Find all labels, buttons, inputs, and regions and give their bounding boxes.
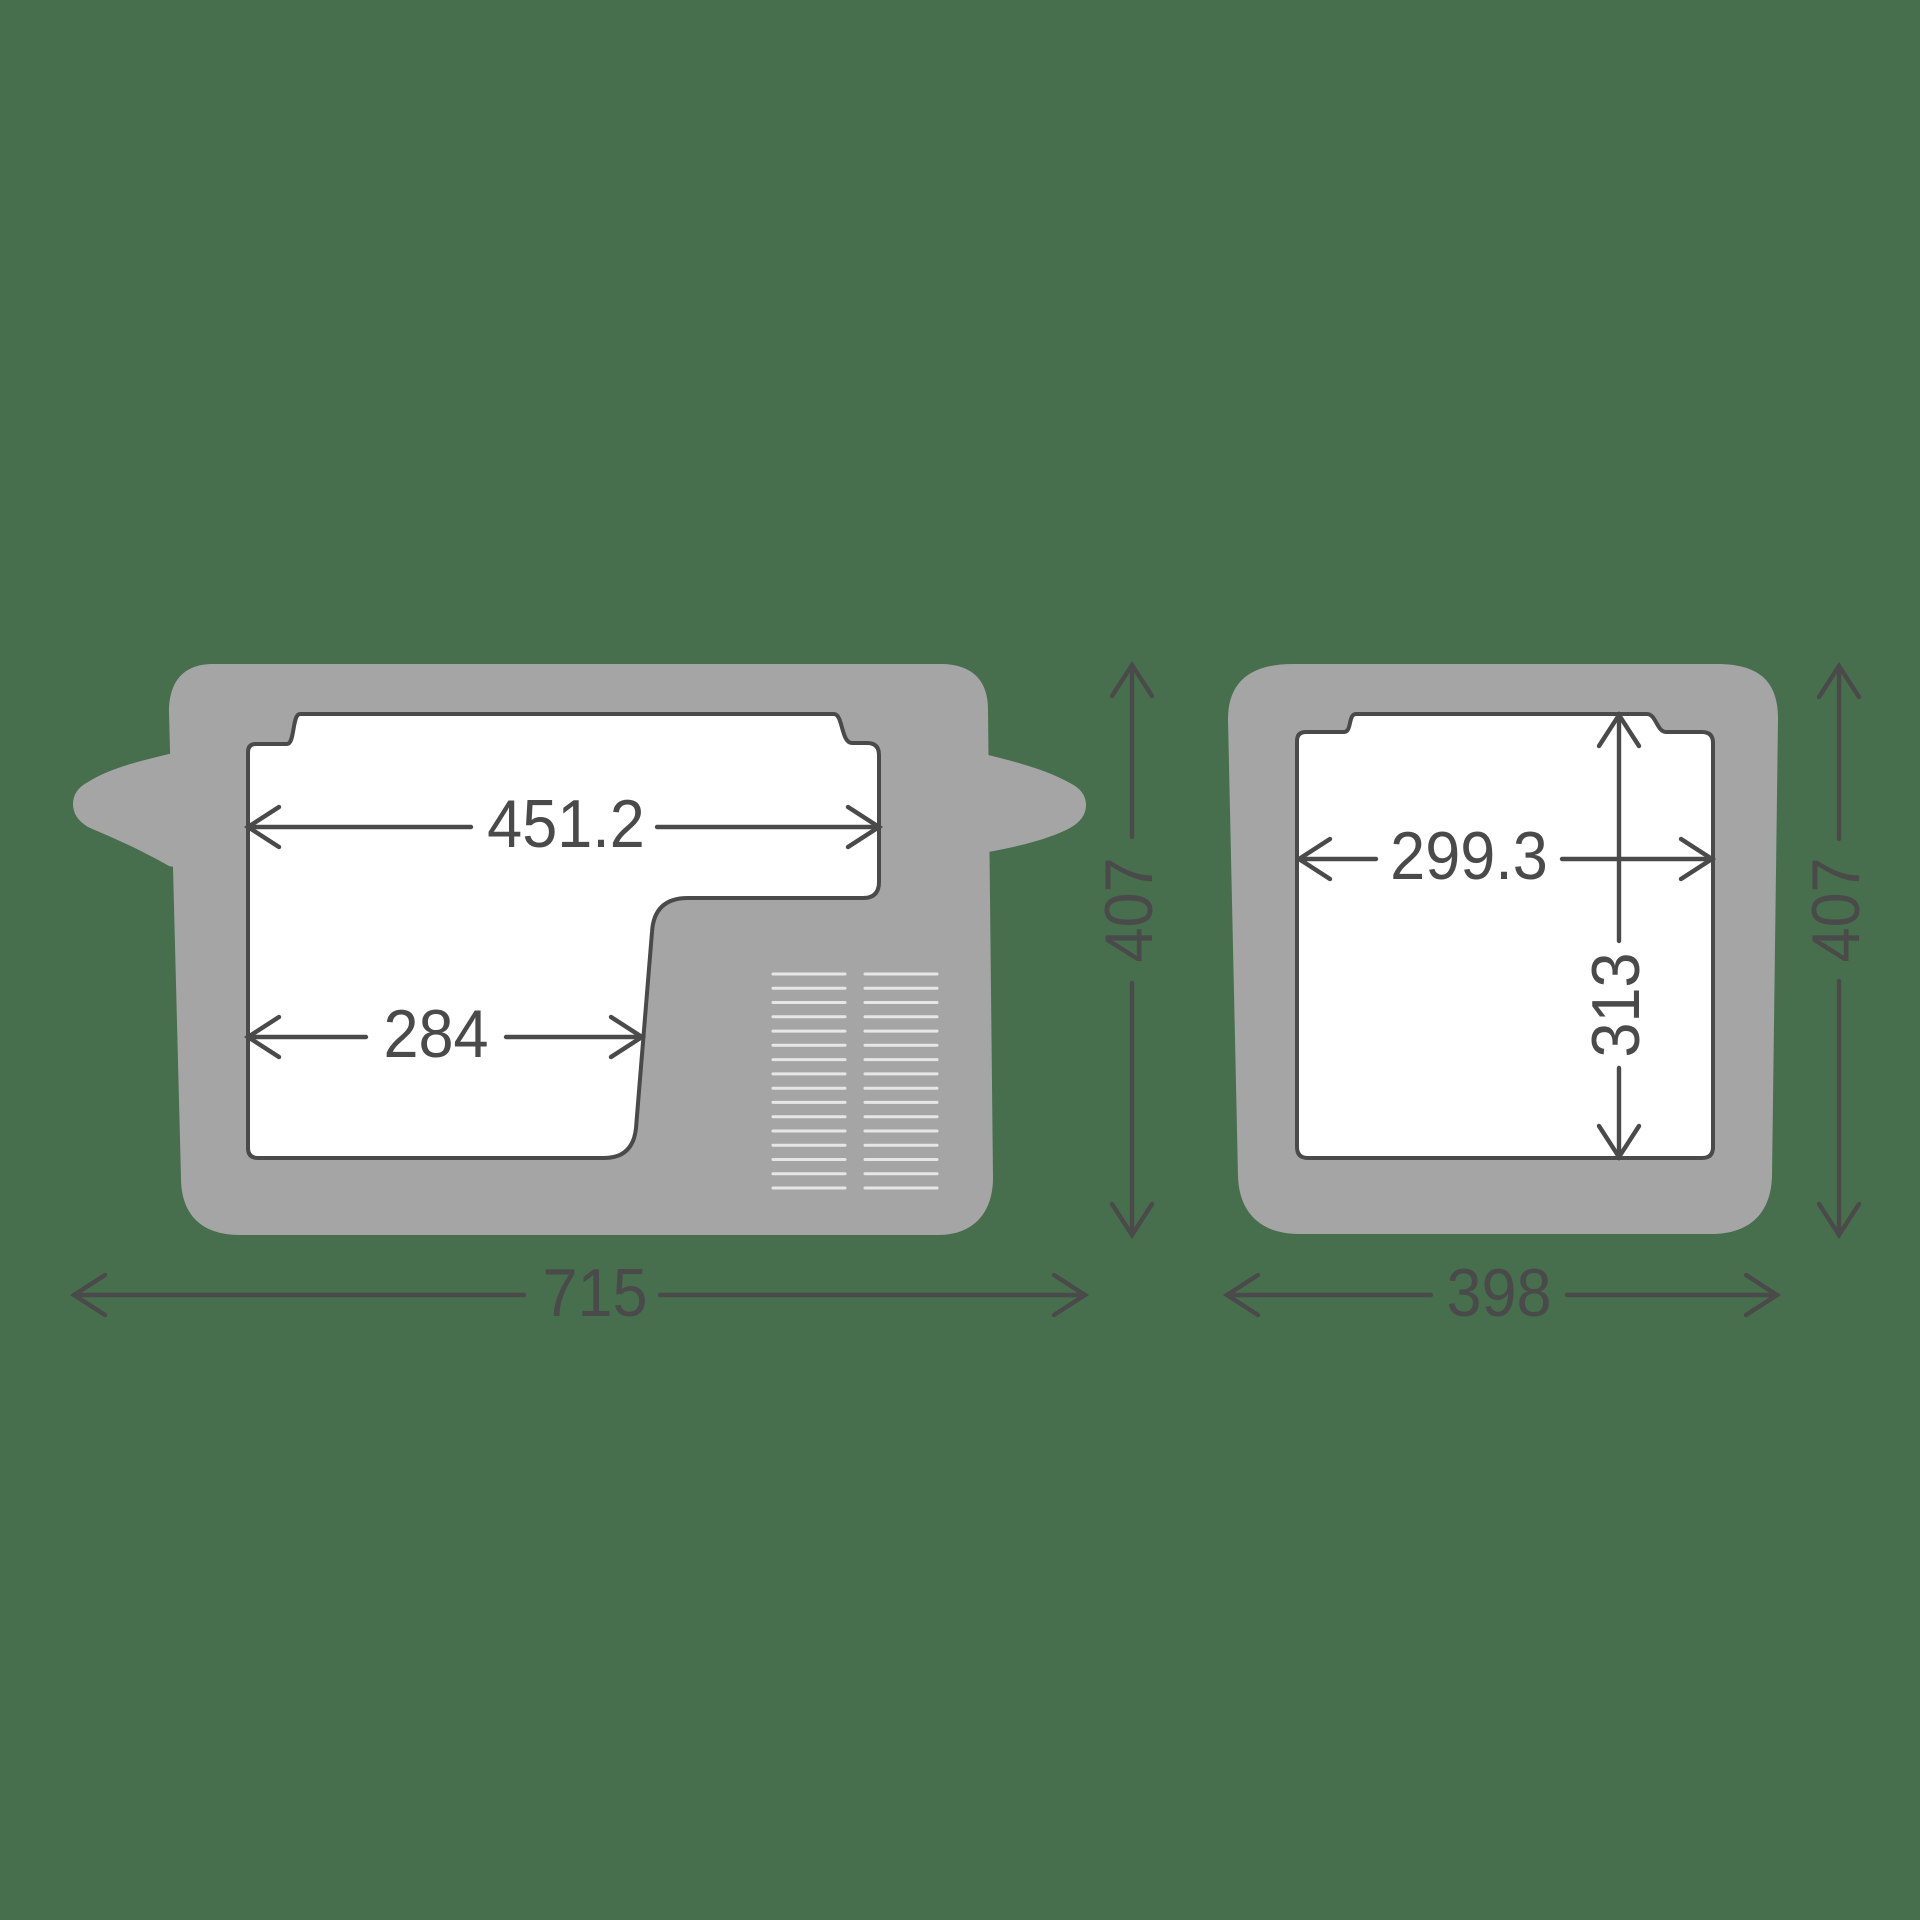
svg-text:715: 715: [542, 1255, 647, 1330]
svg-text:398: 398: [1446, 1255, 1551, 1330]
svg-text:313: 313: [1578, 952, 1653, 1057]
svg-text:407: 407: [1091, 857, 1166, 962]
svg-text:451.2: 451.2: [487, 786, 645, 861]
svg-text:299.3: 299.3: [1390, 818, 1548, 893]
svg-text:407: 407: [1798, 857, 1873, 962]
svg-text:284: 284: [383, 996, 488, 1071]
